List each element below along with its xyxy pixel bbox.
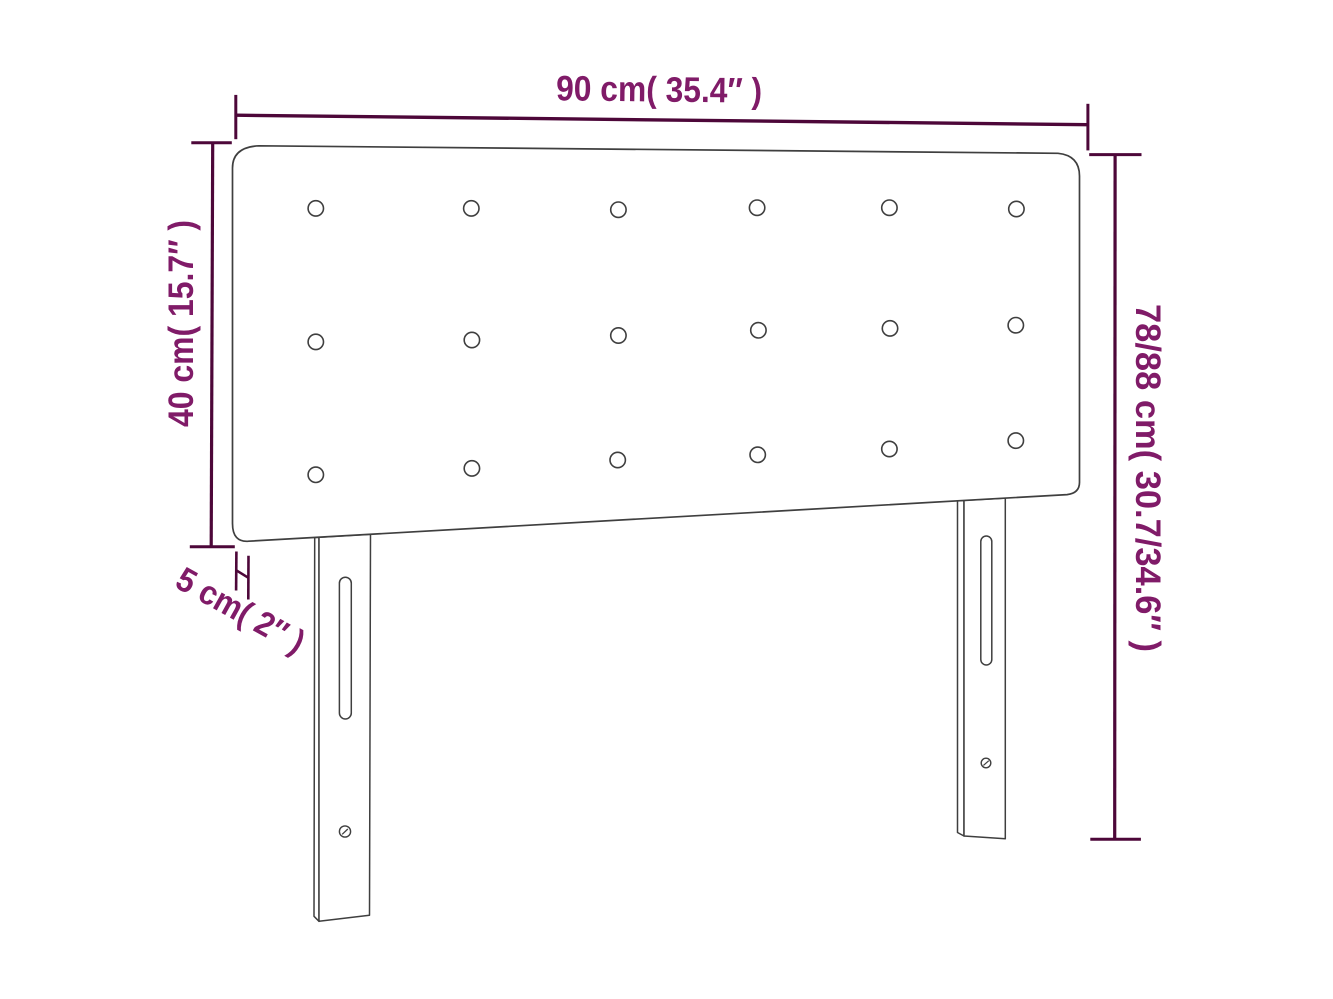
- svg-text:5 cm( 2″ ): 5 cm( 2″ ): [169, 560, 311, 662]
- svg-text:40 cm( 15.7″ ): 40 cm( 15.7″ ): [161, 220, 201, 427]
- svg-text:78/88 cm( 30.7/34.6″ ): 78/88 cm( 30.7/34.6″ ): [1128, 304, 1168, 652]
- svg-text:90 cm( 35.4″ ): 90 cm( 35.4″ ): [556, 68, 762, 111]
